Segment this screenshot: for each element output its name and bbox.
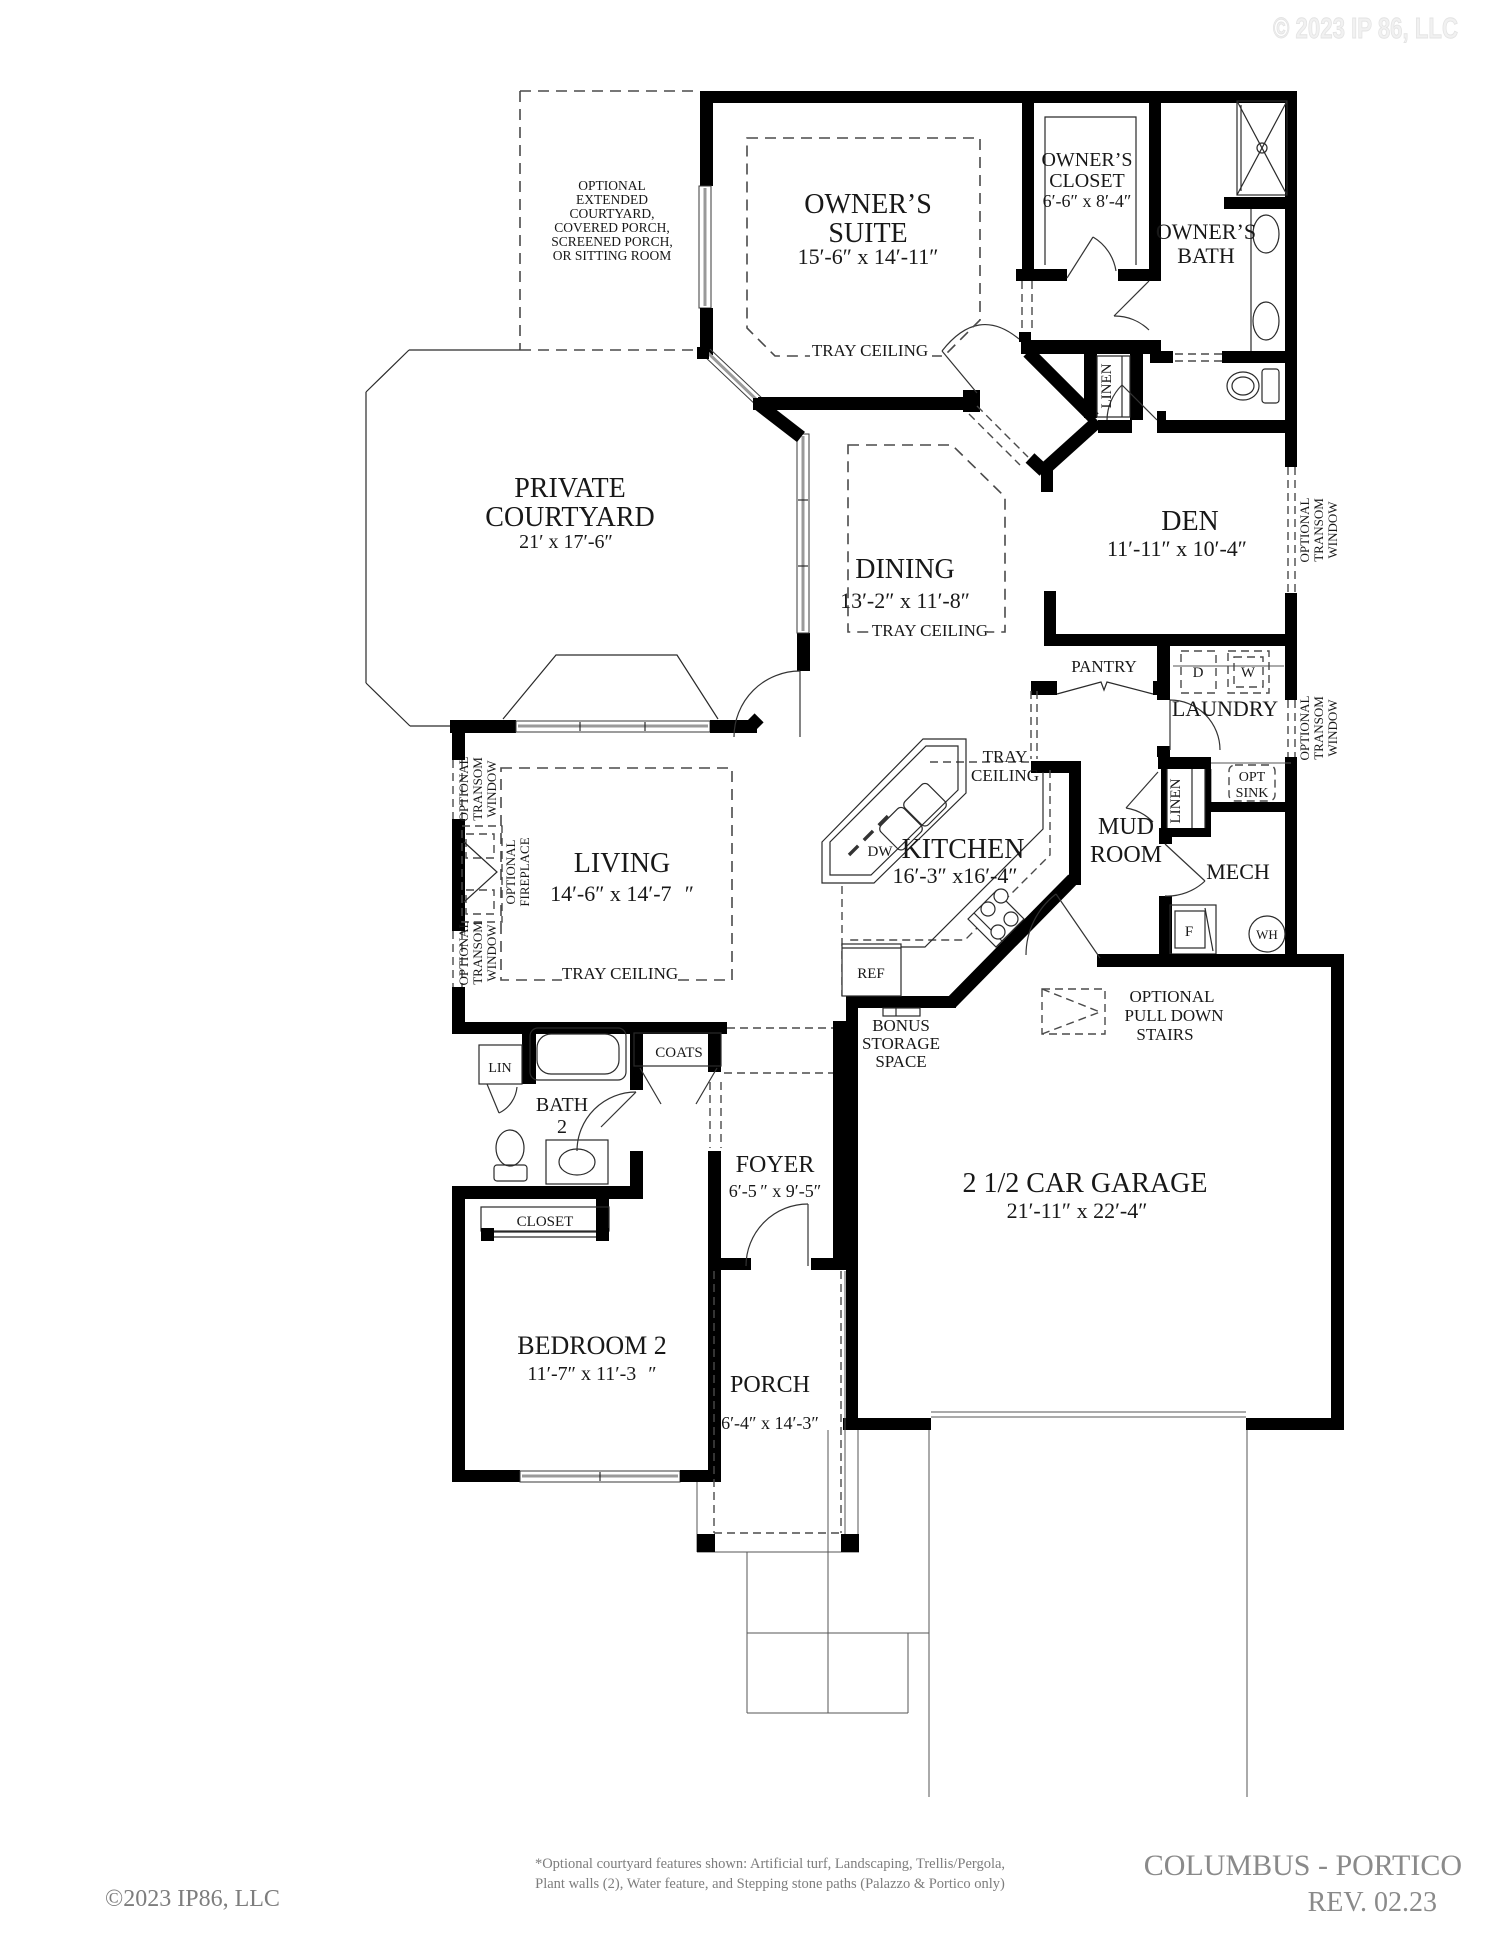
svg-text:D: D	[1193, 665, 1204, 681]
svg-text:LIN: LIN	[488, 1061, 511, 1076]
svg-text:OPT: OPT	[1239, 770, 1266, 785]
svg-text:11′-7″ x 11′-3 ″: 11′-7″ x 11′-3 ″	[527, 1363, 656, 1385]
svg-text:OPTIONAL: OPTIONAL	[456, 920, 471, 985]
svg-text:21′ x 17′-6″: 21′ x 17′-6″	[519, 531, 613, 553]
svg-text:DINING: DINING	[855, 554, 955, 585]
svg-text:OPTIONAL: OPTIONAL	[456, 756, 471, 821]
svg-text:©2023 IP86, LLC: ©2023 IP86, LLC	[105, 1886, 280, 1912]
svg-text:COLUMBUS - PORTICO: COLUMBUS - PORTICO	[1144, 1849, 1462, 1882]
svg-text:WINDOW: WINDOW	[484, 924, 499, 982]
svg-text:WINDOW: WINDOW	[1325, 699, 1340, 757]
svg-text:DEN: DEN	[1161, 506, 1219, 537]
svg-text:LINEN: LINEN	[1099, 363, 1115, 408]
svg-text:*Optional courtyard features s: *Optional courtyard features shown: Arti…	[535, 1856, 1005, 1872]
svg-text:21′-11″ x 22′-4″: 21′-11″ x 22′-4″	[1007, 1198, 1148, 1223]
svg-text:Plant walls (2), Water feature: Plant walls (2), Water feature, and Step…	[535, 1876, 1005, 1892]
svg-text:16′-3″ x16′-4″: 16′-3″ x16′-4″	[892, 863, 1017, 888]
svg-text:OWNER’S: OWNER’S	[1041, 149, 1132, 171]
svg-text:F: F	[1185, 924, 1193, 940]
svg-text:LINEN: LINEN	[1168, 778, 1184, 823]
svg-text:OPTIONAL: OPTIONAL	[1297, 497, 1312, 562]
svg-text:OPTIONAL: OPTIONAL	[1297, 695, 1312, 760]
svg-text:STORAGE: STORAGE	[862, 1034, 940, 1053]
svg-text:SPACE: SPACE	[875, 1052, 926, 1071]
svg-text:MUD: MUD	[1098, 814, 1154, 840]
svg-text:OWNER’S: OWNER’S	[1156, 219, 1256, 244]
svg-text:STAIRS: STAIRS	[1136, 1025, 1193, 1044]
svg-text:13′-2″ x 11′-8″: 13′-2″ x 11′-8″	[840, 588, 970, 613]
svg-text:2 1/2 CAR GARAGE: 2 1/2 CAR GARAGE	[962, 1168, 1207, 1199]
svg-text:LAUNDRY: LAUNDRY	[1172, 696, 1278, 721]
svg-text:TRAY CEILING: TRAY CEILING	[812, 341, 928, 360]
svg-text:CLOSET: CLOSET	[1049, 170, 1125, 192]
svg-text:SCREENED PORCH,: SCREENED PORCH,	[551, 234, 673, 249]
svg-text:TRANSOM: TRANSOM	[470, 757, 485, 821]
svg-text:TRANSOM: TRANSOM	[470, 921, 485, 985]
svg-text:COVERED PORCH,: COVERED PORCH,	[554, 220, 670, 235]
svg-text:TRAY CEILING: TRAY CEILING	[562, 964, 678, 983]
svg-text:WH: WH	[1256, 927, 1278, 942]
svg-text:REF: REF	[857, 966, 885, 982]
svg-text:15′-6″ x 14′-11″: 15′-6″ x 14′-11″	[798, 244, 939, 269]
svg-text:W: W	[1241, 665, 1256, 681]
svg-text:14′-6″ x 14′-7 ″: 14′-6″ x 14′-7 ″	[550, 881, 694, 906]
svg-text:OPTIONAL: OPTIONAL	[1130, 987, 1215, 1006]
svg-text:6′-5 ″ x 9′-5″: 6′-5 ″ x 9′-5″	[729, 1181, 821, 1201]
svg-text:FOYER: FOYER	[736, 1152, 815, 1178]
svg-text:BATH: BATH	[536, 1094, 588, 1116]
svg-text:PRIVATE: PRIVATE	[514, 473, 626, 504]
svg-text:11′-11″ x 10′-4″: 11′-11″ x 10′-4″	[1107, 536, 1247, 561]
svg-text:FIREPLACE: FIREPLACE	[517, 837, 532, 906]
svg-text:6′-4″ x 14′-3″: 6′-4″ x 14′-3″	[721, 1413, 819, 1433]
svg-text:BONUS: BONUS	[872, 1016, 930, 1035]
svg-text:MECH: MECH	[1206, 859, 1270, 884]
svg-text:EXTENDED: EXTENDED	[576, 192, 648, 207]
svg-text:BEDROOM 2: BEDROOM 2	[517, 1331, 667, 1360]
svg-text:TRAY CEILING: TRAY CEILING	[872, 621, 988, 640]
svg-text:PANTRY: PANTRY	[1071, 657, 1137, 676]
svg-text:WINDOW: WINDOW	[484, 760, 499, 818]
svg-text:OPTIONAL: OPTIONAL	[578, 178, 646, 193]
svg-text:REV. 02.23: REV. 02.23	[1308, 1887, 1437, 1918]
svg-text:CEILING: CEILING	[971, 766, 1039, 785]
svg-text:© 2023 IP 86, LLC: © 2023 IP 86, LLC	[1273, 13, 1458, 45]
svg-text:SINK: SINK	[1236, 786, 1269, 801]
svg-text:DW: DW	[868, 844, 894, 860]
svg-text:6′-6″ x 8′-4″: 6′-6″ x 8′-4″	[1043, 191, 1132, 211]
svg-text:COURTYARD: COURTYARD	[485, 502, 654, 533]
svg-text:KITCHEN: KITCHEN	[902, 834, 1025, 865]
svg-text:TRANSOM: TRANSOM	[1311, 498, 1326, 562]
svg-text:TRANSOM: TRANSOM	[1311, 696, 1326, 760]
svg-text:LIVING: LIVING	[574, 848, 670, 879]
svg-text:OR SITTING ROOM: OR SITTING ROOM	[553, 248, 672, 263]
svg-text:COATS: COATS	[655, 1045, 703, 1061]
svg-text:PORCH: PORCH	[730, 1372, 810, 1398]
svg-text:BATH: BATH	[1177, 243, 1235, 268]
svg-text:WINDOW: WINDOW	[1325, 501, 1340, 559]
svg-text:CLOSET: CLOSET	[517, 1214, 574, 1230]
svg-text:ROOM: ROOM	[1090, 842, 1162, 868]
svg-text:2: 2	[557, 1116, 567, 1138]
svg-text:OPTIONAL: OPTIONAL	[503, 839, 518, 904]
svg-text:PULL DOWN: PULL DOWN	[1125, 1006, 1224, 1025]
svg-text:TRAY: TRAY	[983, 747, 1028, 766]
svg-text:COURTYARD,: COURTYARD,	[569, 206, 654, 221]
svg-text:OWNER’S: OWNER’S	[804, 189, 932, 220]
